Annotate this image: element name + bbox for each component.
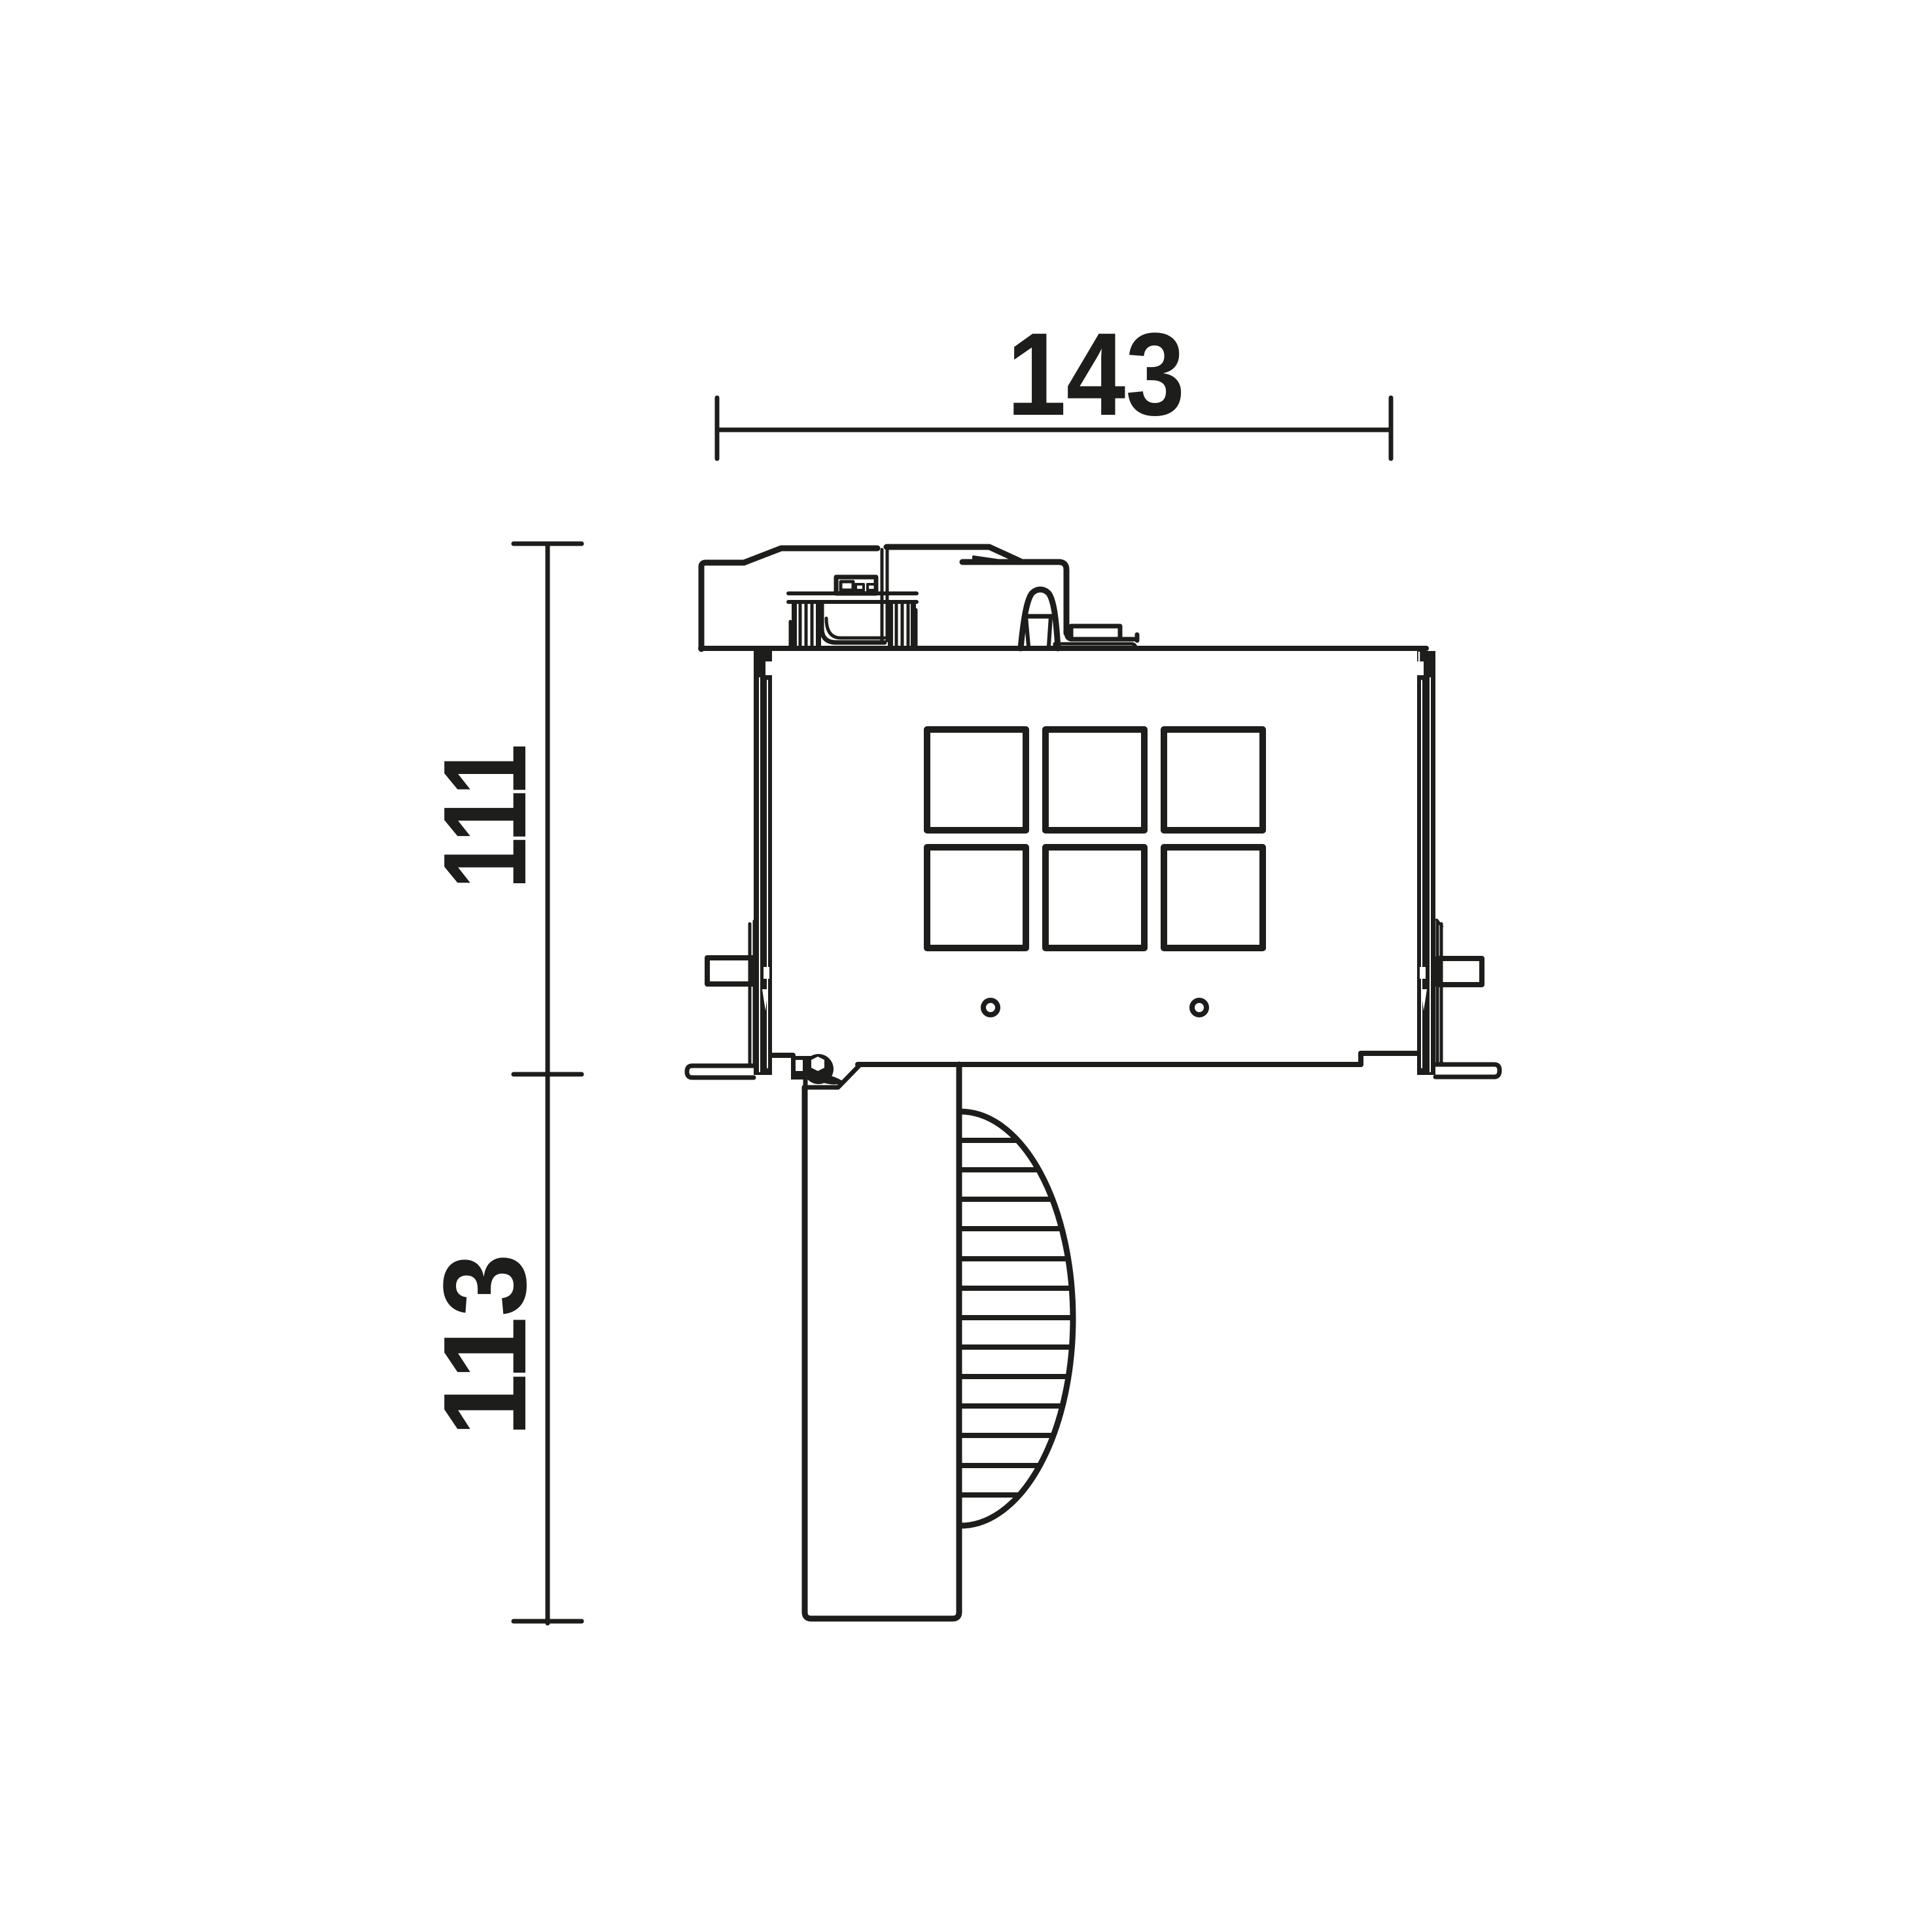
svg-text:111: 111: [419, 744, 551, 889]
svg-text:113: 113: [419, 1254, 551, 1437]
svg-text:143: 143: [1007, 309, 1185, 440]
